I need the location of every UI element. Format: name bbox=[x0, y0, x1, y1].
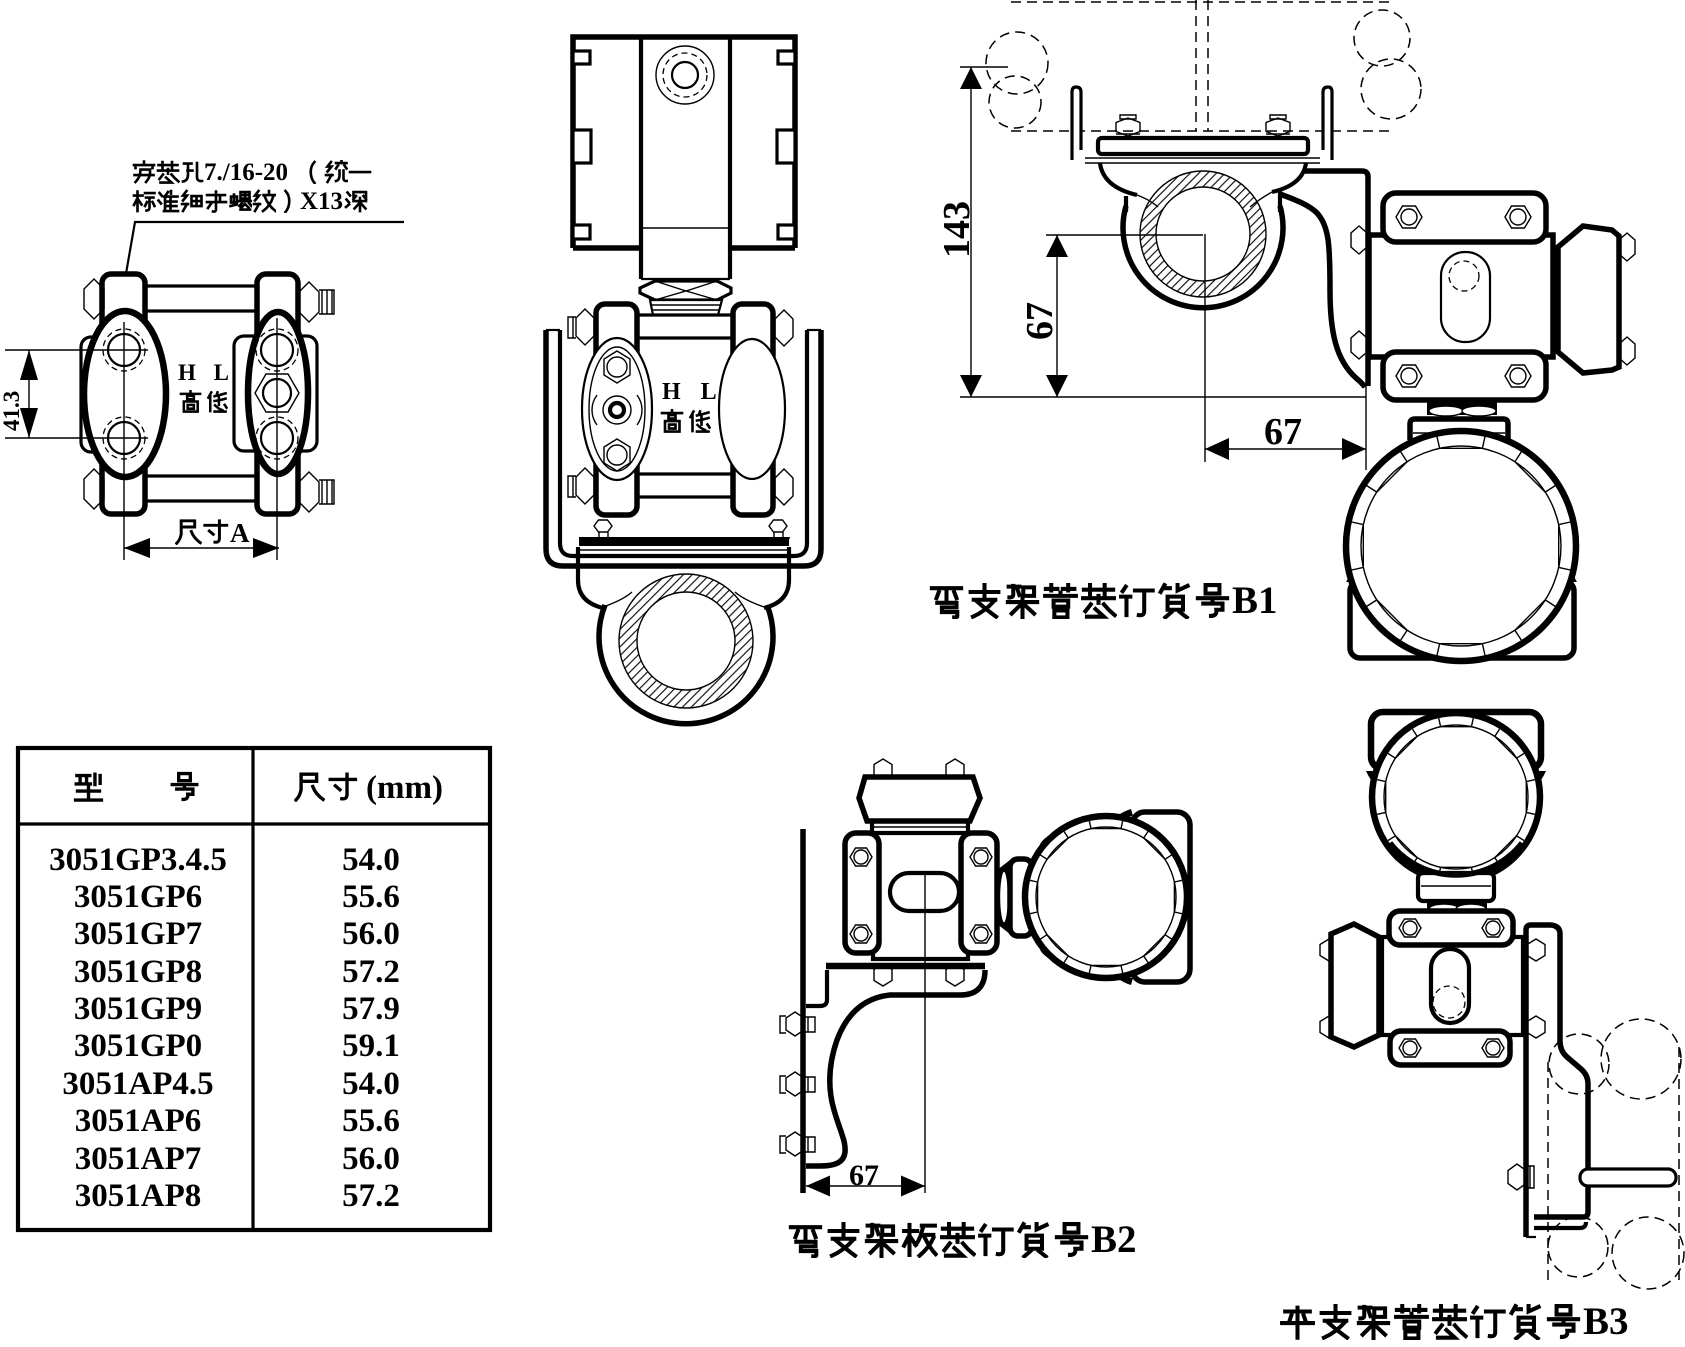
svg-text:3051GP3.4.5: 3051GP3.4.5 bbox=[49, 842, 227, 878]
svg-text:H L: H L bbox=[178, 360, 235, 385]
svg-text:143: 143 bbox=[936, 201, 978, 258]
svg-text:X13: X13 bbox=[300, 188, 343, 215]
svg-text:57.2: 57.2 bbox=[342, 954, 400, 990]
svg-text:56.0: 56.0 bbox=[342, 1141, 400, 1177]
svg-text:3051AP7: 3051AP7 bbox=[75, 1141, 202, 1177]
svg-text:3051AP8: 3051AP8 bbox=[75, 1178, 202, 1214]
svg-text:3051GP9: 3051GP9 bbox=[74, 991, 202, 1027]
svg-text:3051AP6: 3051AP6 bbox=[75, 1103, 202, 1139]
svg-text:55.6: 55.6 bbox=[342, 879, 400, 915]
svg-text:56.0: 56.0 bbox=[342, 916, 400, 952]
svg-text:3051GP0: 3051GP0 bbox=[74, 1028, 202, 1064]
svg-text:H L: H L bbox=[662, 379, 724, 405]
svg-text:41.3: 41.3 bbox=[0, 391, 24, 431]
svg-text:B2: B2 bbox=[1091, 1218, 1137, 1261]
svg-text:55.6: 55.6 bbox=[342, 1103, 400, 1139]
svg-text:54.0: 54.0 bbox=[342, 1066, 400, 1102]
svg-text:54.0: 54.0 bbox=[342, 842, 400, 878]
svg-text:B1: B1 bbox=[1232, 579, 1278, 622]
svg-text:57.2: 57.2 bbox=[342, 1178, 400, 1214]
svg-text:3051GP7: 3051GP7 bbox=[74, 916, 202, 952]
svg-text:3051GP8: 3051GP8 bbox=[74, 954, 202, 990]
svg-text:7./16-20: 7./16-20 bbox=[204, 159, 288, 186]
svg-text:59.1: 59.1 bbox=[342, 1028, 400, 1064]
svg-text:67: 67 bbox=[1264, 411, 1302, 453]
svg-text:3051AP4.5: 3051AP4.5 bbox=[62, 1066, 213, 1102]
svg-text:B3: B3 bbox=[1583, 1300, 1629, 1343]
svg-text:(mm): (mm) bbox=[366, 770, 443, 806]
svg-text:67: 67 bbox=[1019, 302, 1061, 340]
svg-text:57.9: 57.9 bbox=[342, 991, 400, 1027]
svg-text:67: 67 bbox=[849, 1159, 879, 1192]
svg-text:3051GP6: 3051GP6 bbox=[74, 879, 202, 915]
svg-text:A: A bbox=[230, 518, 250, 548]
